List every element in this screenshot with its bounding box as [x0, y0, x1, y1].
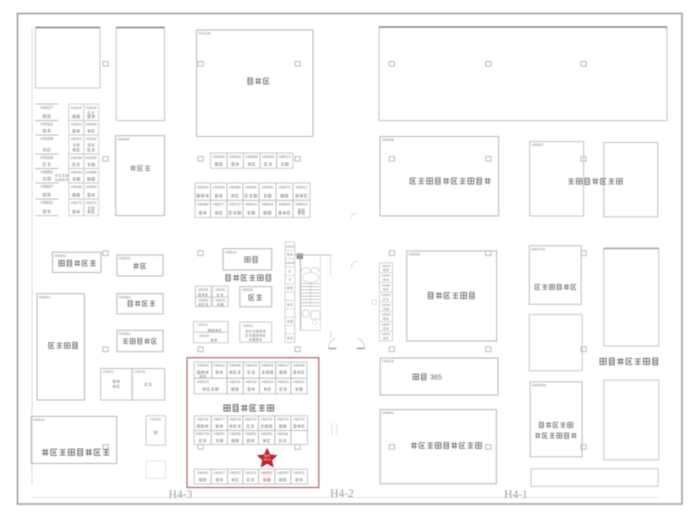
- svg-text:H5052: H5052: [409, 252, 422, 257]
- svg-text:H5046: H5046: [286, 261, 295, 265]
- svg-text:H0691: H0691: [532, 142, 545, 147]
- svg-text:H3070: H3070: [103, 370, 114, 374]
- svg-text:H3112: H3112: [41, 122, 54, 127]
- svg-text:H5080: H5080: [197, 202, 210, 207]
- svg-text:H5036: H5036: [215, 288, 225, 292]
- svg-text:H6013: H6013: [245, 470, 256, 475]
- svg-text:H4015: H4015: [382, 359, 395, 364]
- svg-text:H3117: H3117: [41, 105, 54, 110]
- svg-text:H5094: H5094: [382, 274, 391, 278]
- svg-text:H5024: H5024: [279, 202, 292, 207]
- svg-text:H3099: H3099: [86, 122, 97, 126]
- svg-text:H6050: H6050: [277, 470, 289, 475]
- svg-text:H5014: H5014: [245, 202, 258, 207]
- svg-text:H6061: H6061: [197, 470, 208, 475]
- svg-text:H3110: H3110: [71, 122, 82, 126]
- svg-text:H3062: H3062: [119, 294, 132, 299]
- svg-text:H6021: H6021: [277, 379, 288, 384]
- svg-text:H5051: H5051: [242, 287, 255, 292]
- svg-text:H5091: H5091: [286, 245, 295, 249]
- svg-text:H3031: H3031: [41, 200, 54, 205]
- svg-text:H6042: H6042: [197, 363, 208, 368]
- svg-text:H3080: H3080: [86, 185, 97, 189]
- svg-text:H5096: H5096: [382, 303, 391, 307]
- svg-text:H3071: H3071: [86, 201, 97, 205]
- svg-text:H5060: H5060: [213, 154, 226, 159]
- svg-text:H5072: H5072: [229, 202, 242, 207]
- svg-text:H5029: H5029: [215, 298, 225, 302]
- svg-text:H00026: H00026: [532, 382, 547, 387]
- svg-text:H5098: H5098: [382, 283, 391, 287]
- svg-text:H3076: H3076: [135, 370, 146, 374]
- svg-text:H5009: H5009: [382, 264, 391, 268]
- svg-text:H3072: H3072: [71, 201, 82, 205]
- svg-text:H5050: H5050: [198, 298, 208, 302]
- svg-text:H3109: H3109: [41, 136, 54, 141]
- svg-text:H6023: H6023: [197, 379, 208, 384]
- svg-text:H3096: H3096: [71, 156, 82, 160]
- svg-text:H5063: H5063: [213, 184, 226, 189]
- svg-text:H5061: H5061: [197, 184, 210, 189]
- svg-text:H3115: H3115: [71, 106, 82, 110]
- svg-text:H5082: H5082: [229, 184, 242, 189]
- svg-text:H6058: H6058: [230, 432, 241, 436]
- svg-text:H5021: H5021: [296, 184, 309, 189]
- svg-text:H3061: H3061: [119, 331, 132, 336]
- svg-text:H5040: H5040: [262, 184, 275, 189]
- svg-text:H5071: H5071: [279, 154, 292, 159]
- svg-text:H3041: H3041: [39, 294, 52, 299]
- svg-text:H4-2: H4-2: [330, 488, 354, 500]
- svg-text:H3090: H3090: [71, 170, 82, 174]
- svg-text:H3102: H3102: [86, 137, 97, 141]
- svg-text:H5077: H5077: [213, 202, 226, 207]
- svg-text:H6074: H6074: [245, 417, 257, 422]
- svg-text:H4011: H4011: [33, 417, 45, 422]
- svg-text:H5025: H5025: [198, 288, 208, 292]
- svg-text:H3091: H3091: [119, 256, 132, 261]
- svg-text:H6077: H6077: [214, 417, 225, 422]
- svg-text:H3086: H3086: [71, 185, 82, 189]
- svg-text:H6040: H6040: [229, 363, 241, 368]
- svg-text:H6028: H6028: [262, 363, 273, 368]
- svg-text:H5073: H5073: [279, 184, 292, 189]
- svg-text:H6076: H6076: [229, 417, 240, 422]
- svg-text:H5016: H5016: [262, 202, 275, 207]
- svg-text:H6046: H6046: [277, 432, 288, 436]
- svg-text:H4128: H4128: [199, 31, 212, 36]
- svg-text:H6032: H6032: [246, 379, 257, 384]
- svg-text:H5011: H5011: [225, 249, 237, 254]
- svg-text:H5097: H5097: [382, 322, 391, 326]
- svg-text:H4001: H4001: [382, 410, 395, 415]
- svg-text:H6027: H6027: [277, 363, 288, 368]
- svg-text:H6026: H6026: [293, 363, 304, 368]
- svg-text:H4-3: H4-3: [169, 489, 193, 501]
- svg-text:H5068: H5068: [246, 154, 259, 159]
- svg-text:H3101: H3101: [71, 137, 82, 141]
- svg-text:H4094: H4094: [118, 136, 131, 141]
- svg-text:H6052: H6052: [261, 470, 272, 475]
- svg-text:H6051: H6051: [229, 470, 240, 475]
- svg-text:H4029: H4029: [150, 418, 161, 422]
- svg-text:H5012: H5012: [198, 323, 208, 327]
- svg-text:H0006: H0006: [382, 137, 395, 142]
- svg-text:H6075: H6075: [261, 417, 272, 422]
- svg-text:H3108: H3108: [41, 155, 54, 160]
- svg-text:H5069: H5069: [262, 154, 275, 159]
- svg-text:H6057: H6057: [214, 432, 225, 436]
- svg-text:H6072: H6072: [293, 417, 304, 422]
- svg-text:H6077A: H6077A: [196, 432, 210, 436]
- svg-text:H5095: H5095: [382, 313, 391, 317]
- svg-text:H6073: H6073: [277, 417, 288, 422]
- svg-text:H00701: H00701: [531, 246, 546, 251]
- svg-text:H5081: H5081: [245, 184, 258, 189]
- svg-text:H6022: H6022: [293, 379, 304, 384]
- svg-text:H5062: H5062: [229, 154, 242, 159]
- svg-text:H6031: H6031: [229, 379, 240, 384]
- svg-text:H5045: H5045: [199, 334, 209, 338]
- svg-text:H3052: H3052: [41, 170, 54, 175]
- svg-text:H3047: H3047: [41, 184, 54, 189]
- svg-text:H3116: H3116: [86, 106, 97, 110]
- svg-text:H6029: H6029: [246, 363, 257, 368]
- svg-text:H6001: H6001: [293, 470, 304, 475]
- svg-text:H6045: H6045: [261, 432, 272, 436]
- svg-text:H3095: H3095: [86, 156, 97, 160]
- svg-text:H6011: H6011: [214, 363, 225, 368]
- svg-text:H3092: H3092: [54, 253, 67, 258]
- svg-text:H3089: H3089: [86, 170, 97, 174]
- svg-text:H5093: H5093: [382, 293, 391, 297]
- svg-text:H5099: H5099: [382, 332, 391, 336]
- svg-text:H4-1: H4-1: [504, 489, 528, 501]
- svg-text:H5015: H5015: [296, 202, 309, 207]
- svg-text:H5031: H5031: [243, 324, 253, 328]
- svg-text:H6007: H6007: [214, 470, 225, 475]
- svg-text:365: 365: [430, 374, 442, 381]
- svg-text:H6033: H6033: [262, 379, 273, 384]
- svg-text:H6059: H6059: [245, 432, 256, 436]
- svg-text:H6078: H6078: [197, 417, 208, 422]
